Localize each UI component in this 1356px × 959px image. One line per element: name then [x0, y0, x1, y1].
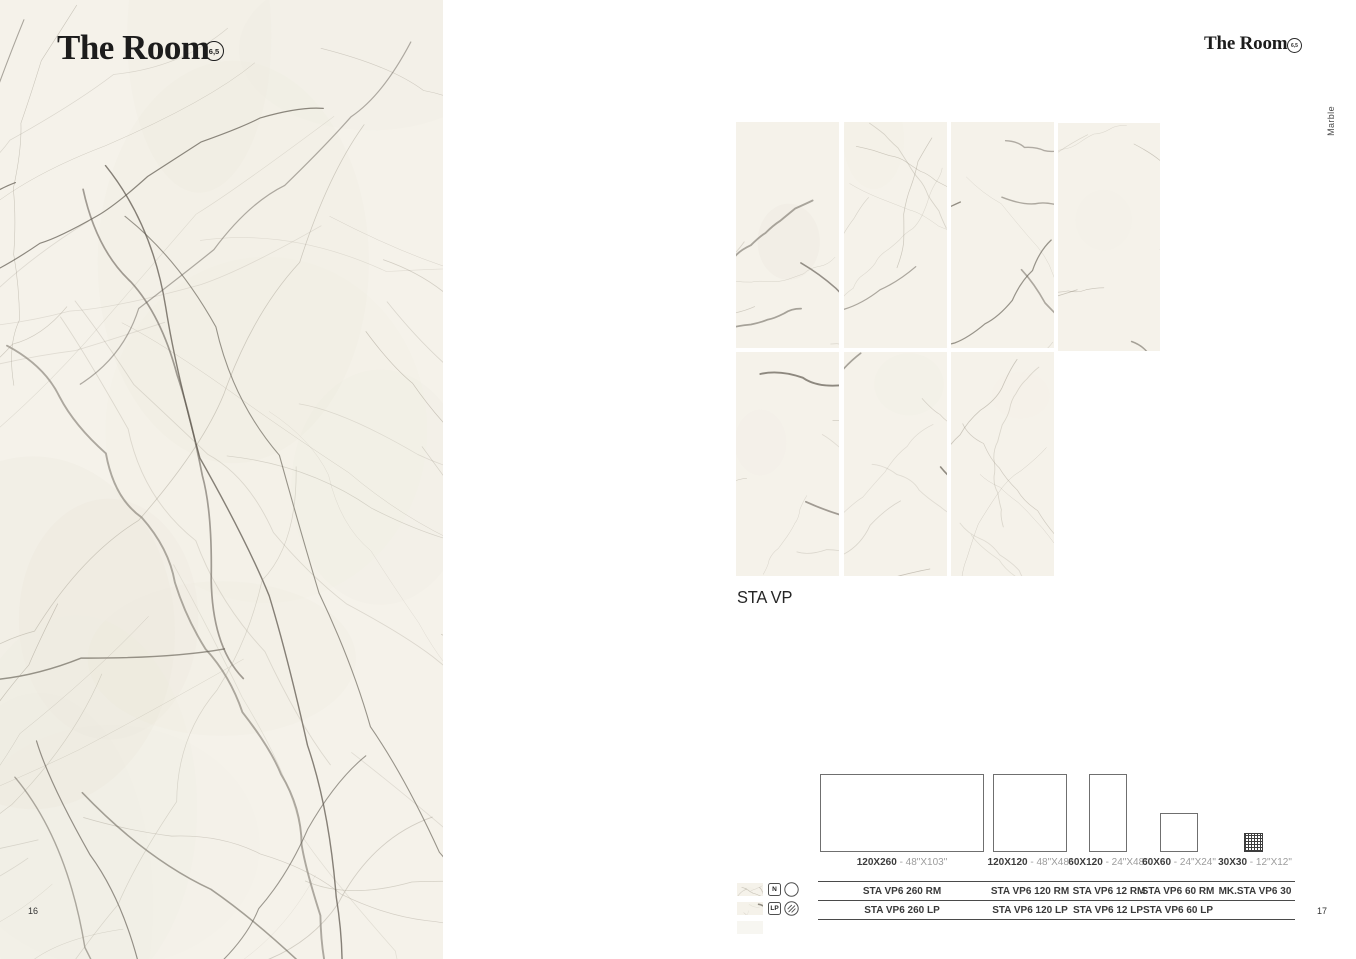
- format-box-120x120: [993, 774, 1067, 852]
- code-cell: STA VP6 120 RM: [991, 884, 1069, 899]
- format-label-120x260: 120X260 - 48"X103": [857, 857, 948, 868]
- format-inches: - 48"X103": [900, 857, 948, 868]
- format-inches: - 12"X12": [1250, 857, 1292, 868]
- code-cell: STA VP6 60 RM: [1142, 884, 1215, 899]
- gloss-finish-circle-icon: [784, 901, 799, 916]
- format-box-120x260: [820, 774, 984, 852]
- format-box-60x120: [1089, 774, 1127, 852]
- code-cell: STA VP6 120 LP: [992, 903, 1068, 918]
- thickness-badge-icon: 6,5: [204, 41, 224, 61]
- code-cell: STA VP6 12 RM: [1073, 884, 1146, 899]
- marble-tile-1: [736, 122, 839, 348]
- format-label-60x60: 60X60 - 24"X24": [1142, 857, 1216, 868]
- code-cell: STA VP6 260 RM: [863, 884, 941, 899]
- format-cm: 120X120: [988, 857, 1028, 868]
- format-cm: 30X30: [1218, 857, 1247, 868]
- brand-thickness-badge-icon: 6,5: [1287, 38, 1302, 53]
- page-title: The Room: [57, 28, 210, 68]
- code-cell: STA VP6 260 LP: [864, 903, 940, 918]
- format-cm: 60X120: [1068, 857, 1102, 868]
- marble-tile-5: [736, 352, 839, 576]
- marble-tile-7: [951, 352, 1054, 576]
- table-rule-bottom: [818, 919, 1295, 920]
- mosaic-grid-icon: [1244, 833, 1263, 852]
- finish-swatch-extra: [737, 921, 763, 934]
- code-cell: STA VP6 60 LP: [1143, 903, 1213, 918]
- format-label-60x120: 60X120 - 24"X48": [1068, 857, 1147, 868]
- table-rule-top: [818, 881, 1295, 882]
- product-name: STA VP: [737, 587, 792, 608]
- finish-code-lp-box: LP: [768, 902, 781, 915]
- finish-swatch-lappato: [737, 902, 763, 915]
- marble-tile-3: [951, 122, 1054, 348]
- page-number-left: 16: [28, 906, 38, 916]
- format-inches: - 24"X24": [1174, 857, 1216, 868]
- marble-slab-image: [0, 0, 443, 959]
- category-side-label: Marble: [1326, 106, 1336, 136]
- format-box-60x60: [1160, 813, 1198, 852]
- finish-code-n-box: N: [768, 883, 781, 896]
- format-label-30x30: 30X30 - 12"X12": [1218, 857, 1292, 868]
- marble-tile-2: [844, 122, 947, 348]
- code-cell: STA VP6 12 LP: [1073, 903, 1143, 918]
- marble-tile-4: [1058, 123, 1160, 351]
- natural-finish-circle-icon: [784, 882, 799, 897]
- code-cell: MK.STA VP6 30: [1219, 884, 1292, 899]
- brand-logo: The Room: [1204, 33, 1287, 55]
- page-number-right: 17: [1317, 906, 1327, 916]
- format-label-120x120: 120X120 - 48"X48": [988, 857, 1073, 868]
- table-rule-middle: [818, 900, 1295, 901]
- format-cm: 120X260: [857, 857, 897, 868]
- format-cm: 60X60: [1142, 857, 1171, 868]
- finish-swatch-natural: [737, 883, 763, 896]
- marble-tile-6: [844, 352, 947, 576]
- format-inches: - 48"X48": [1030, 857, 1072, 868]
